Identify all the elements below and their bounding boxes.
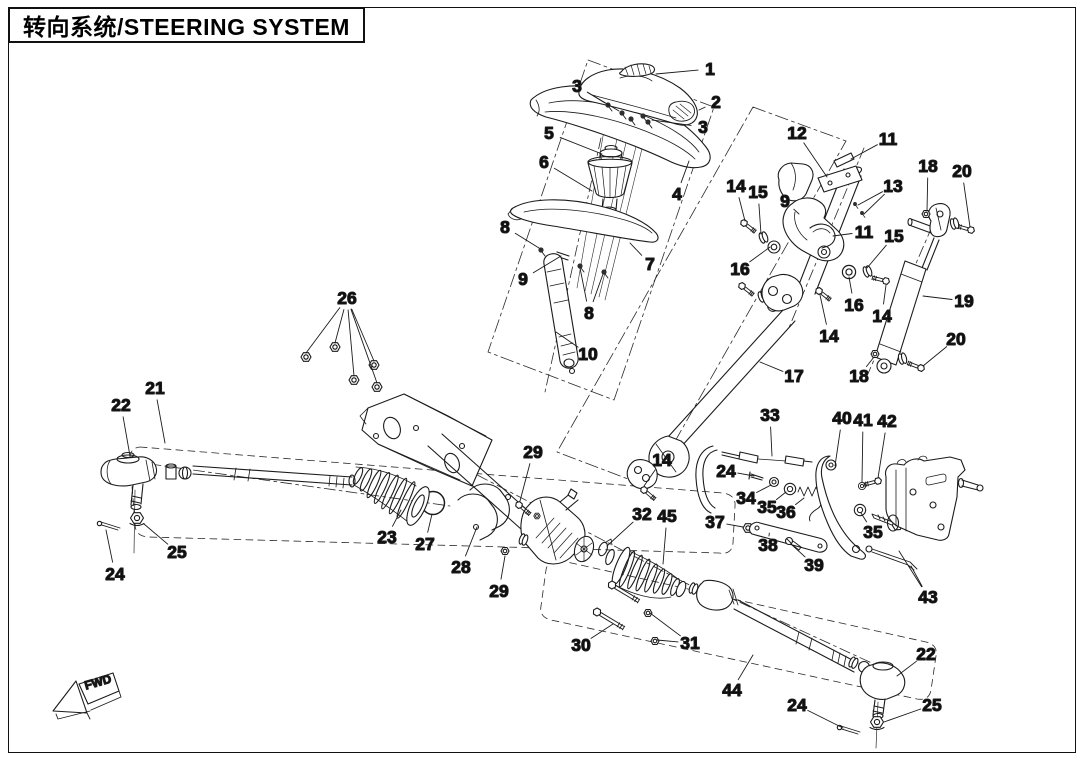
exploded-diagram: FWD 123345678981012111314159111516161414… xyxy=(0,0,1090,760)
callout-label-36: 36 xyxy=(776,502,796,522)
callout-label-29: 29 xyxy=(523,442,543,462)
leader-line xyxy=(466,527,478,556)
leader-line xyxy=(851,145,877,159)
leader-line xyxy=(727,524,743,527)
leader-line xyxy=(123,417,130,456)
callout-label-16: 16 xyxy=(844,295,864,315)
callout-label-29: 29 xyxy=(489,581,509,601)
callout-label-15: 15 xyxy=(748,182,768,202)
callout-label-22: 22 xyxy=(111,395,131,415)
callout-label-41: 41 xyxy=(853,410,873,430)
leader-line xyxy=(144,524,168,544)
leader-line xyxy=(607,522,633,546)
leader-line xyxy=(878,433,885,478)
leader-line xyxy=(771,427,772,456)
callout-label-16: 16 xyxy=(730,259,750,279)
leader-line xyxy=(157,400,165,443)
mount-nuts xyxy=(372,383,382,392)
leader-line xyxy=(899,551,922,587)
callout-label-33: 33 xyxy=(760,405,780,425)
callout-label-14: 14 xyxy=(872,306,892,326)
leader-line xyxy=(656,70,698,74)
callout-label-34: 34 xyxy=(736,488,756,508)
callout-label-3: 3 xyxy=(698,117,708,137)
leader-line xyxy=(630,243,642,255)
leader-line xyxy=(835,430,840,466)
lock-housing xyxy=(783,198,844,261)
callout-label-14: 14 xyxy=(819,326,839,346)
leader-line xyxy=(808,710,843,728)
callout-label-35: 35 xyxy=(757,497,777,517)
column-clamp-plate xyxy=(818,166,862,192)
column-mount-bracket xyxy=(301,343,492,486)
callout-label-1: 1 xyxy=(705,59,715,79)
rack-mount-nuts xyxy=(651,638,659,645)
leader-line xyxy=(335,310,344,343)
callout-label-31: 31 xyxy=(680,633,700,653)
leader-line xyxy=(776,492,786,500)
callout-label-22: 22 xyxy=(916,644,936,664)
callout-label-43: 43 xyxy=(918,587,938,607)
leader-line xyxy=(759,204,761,234)
leader-line xyxy=(520,464,530,501)
leader-line xyxy=(867,245,886,268)
upper-u-joint xyxy=(762,274,803,310)
callout-label-44: 44 xyxy=(722,680,742,700)
lock-pin-strip xyxy=(834,153,854,167)
leader-line xyxy=(348,310,354,376)
callout-label-25: 25 xyxy=(922,695,942,715)
column-lower-shaft xyxy=(544,254,578,368)
construction-lines xyxy=(130,60,941,748)
fwd-arrow: FWD xyxy=(53,672,121,719)
callout-label-10: 10 xyxy=(578,344,598,364)
right-tie-rod xyxy=(734,600,858,672)
right-castle-nut xyxy=(870,717,884,730)
leader-line xyxy=(650,613,680,636)
leader-line xyxy=(750,247,770,262)
leader-line xyxy=(923,347,947,366)
leader-line xyxy=(884,285,887,304)
callout-label-14: 14 xyxy=(652,450,672,470)
leader-line xyxy=(923,296,952,300)
leader-line xyxy=(849,277,852,293)
callout-label-18: 18 xyxy=(849,366,869,386)
callout-label-11: 11 xyxy=(855,222,874,242)
callout-label-2: 2 xyxy=(711,92,721,112)
callout-label-9: 9 xyxy=(518,269,528,289)
leader-line xyxy=(560,137,602,154)
callout-label-28: 28 xyxy=(451,557,471,577)
column-cover-plate xyxy=(511,200,658,242)
linkage-assembly xyxy=(696,446,983,570)
callout-label-14: 14 xyxy=(726,176,746,196)
left-castle-nut xyxy=(130,513,144,526)
callout-label-3: 3 xyxy=(572,76,582,96)
steering-wheel-assembly xyxy=(508,64,710,374)
leader-line xyxy=(760,362,783,371)
cable-hook xyxy=(696,446,717,513)
leader-line xyxy=(501,556,505,579)
leader-line xyxy=(106,530,113,562)
mount-bolt-upper-left xyxy=(739,218,756,234)
damper-rod xyxy=(922,238,939,270)
leader-line xyxy=(580,268,587,301)
leader-line xyxy=(699,107,705,110)
left-tie-rod-assembly xyxy=(97,453,433,531)
leader-line xyxy=(820,295,826,324)
callout-label-23: 23 xyxy=(377,527,397,547)
damper-clevis xyxy=(929,204,951,237)
callout-label-24: 24 xyxy=(787,695,807,715)
leader-line xyxy=(757,485,771,493)
tension-link xyxy=(872,549,917,570)
leader-line xyxy=(884,709,921,722)
left-tie-rod xyxy=(193,466,352,485)
callout-label-8: 8 xyxy=(500,217,510,237)
leader-line xyxy=(864,194,884,214)
callout-label-25: 25 xyxy=(167,542,187,562)
callout-label-42: 42 xyxy=(877,411,897,431)
callout-label-8: 8 xyxy=(584,303,594,323)
inner-tie-rod-joint xyxy=(697,580,733,610)
callout-label-40: 40 xyxy=(832,408,852,428)
callout-label-11: 11 xyxy=(879,129,898,149)
callout-label-20: 20 xyxy=(946,329,966,349)
rack-clamp-outer xyxy=(470,484,509,530)
right-ball-joint xyxy=(860,663,905,700)
callout-label-35: 35 xyxy=(863,522,883,542)
steering-shaft xyxy=(668,310,795,448)
leader-line xyxy=(927,178,928,211)
callout-label-37: 37 xyxy=(705,512,724,532)
callout-label-39: 39 xyxy=(804,555,824,575)
callout-label-18: 18 xyxy=(918,156,938,176)
leader-line xyxy=(796,498,805,505)
callout-label-21: 21 xyxy=(145,378,165,398)
callout-label-32: 32 xyxy=(632,504,652,524)
rack-clamp-inner xyxy=(458,494,497,540)
left-cotter-pin xyxy=(97,521,120,530)
callout-label-9: 9 xyxy=(780,191,790,211)
leader-line xyxy=(897,661,916,676)
callout-label-5: 5 xyxy=(544,123,554,143)
callout-label-15: 15 xyxy=(884,226,904,246)
leader-line xyxy=(515,233,539,248)
leader-line xyxy=(739,198,745,221)
leader-line xyxy=(428,514,432,532)
right-tie-rod-assembly xyxy=(592,546,905,734)
emblem-strip xyxy=(620,64,655,77)
callout-label-7: 7 xyxy=(645,254,655,274)
callout-label-24: 24 xyxy=(105,564,125,584)
callout-label-20: 20 xyxy=(952,161,972,181)
callout-label-4: 4 xyxy=(672,184,682,204)
callout-label-45: 45 xyxy=(657,506,677,526)
leader-line xyxy=(663,528,666,564)
leader-line xyxy=(964,183,970,227)
callout-label-26: 26 xyxy=(337,288,357,308)
leader-line xyxy=(393,510,402,526)
leader-line xyxy=(738,655,753,680)
cable-end-fitting xyxy=(785,456,804,466)
wheel-hub xyxy=(600,149,622,157)
leader-line xyxy=(657,640,678,642)
leader-line xyxy=(858,192,883,205)
callout-label-30: 30 xyxy=(571,635,591,655)
leader-line xyxy=(591,624,613,638)
linkage-pin xyxy=(749,472,763,480)
parts-diagram-page: 转向系统/STEERING SYSTEM xyxy=(0,0,1090,760)
leader-line xyxy=(352,309,374,361)
leader-line xyxy=(862,432,863,482)
callout-label-6: 6 xyxy=(539,152,549,172)
callout-label-13: 13 xyxy=(883,176,903,196)
callout-label-24: 24 xyxy=(716,461,736,481)
callout-label-17: 17 xyxy=(784,366,803,386)
callout-label-27: 27 xyxy=(415,534,434,554)
callout-label-12: 12 xyxy=(787,123,807,143)
callout-label-19: 19 xyxy=(954,291,974,311)
callout-label-38: 38 xyxy=(758,535,778,555)
leader-line xyxy=(351,309,377,383)
leader-line xyxy=(554,168,592,191)
